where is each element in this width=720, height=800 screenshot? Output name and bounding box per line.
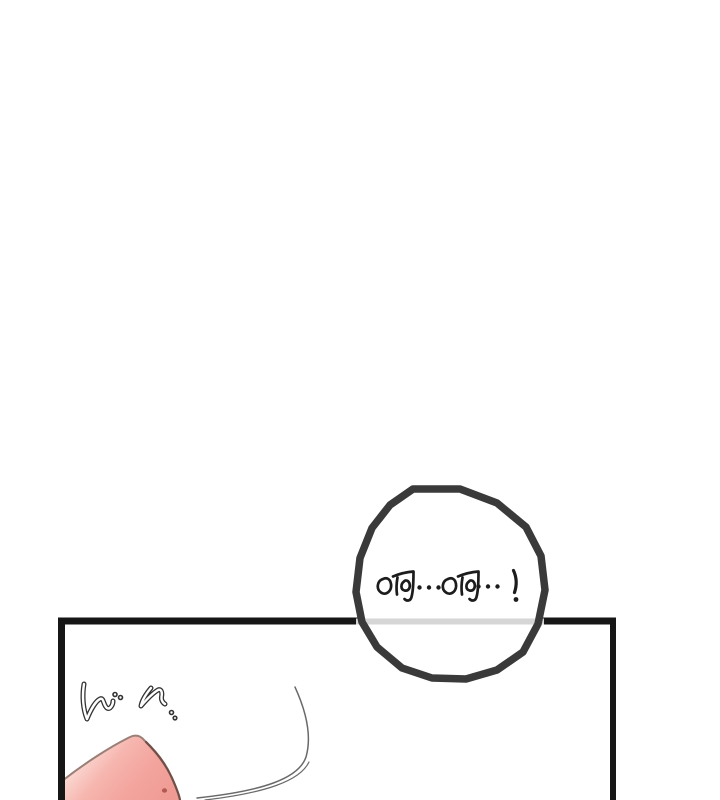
skin-dot — [162, 788, 167, 792]
motion-line — [205, 762, 309, 800]
panel-line-through-bubble — [356, 619, 544, 625]
motion-line — [197, 687, 308, 798]
panel-border-right — [610, 618, 616, 800]
panel-border-left — [58, 618, 65, 800]
motion-lines — [197, 687, 309, 800]
comic-artwork — [0, 0, 720, 800]
sfx-doodles — [83, 684, 177, 720]
comic-page: 啊...啊...! — [0, 0, 720, 800]
skin-shape — [62, 736, 180, 800]
exclamation-dot — [514, 597, 519, 602]
